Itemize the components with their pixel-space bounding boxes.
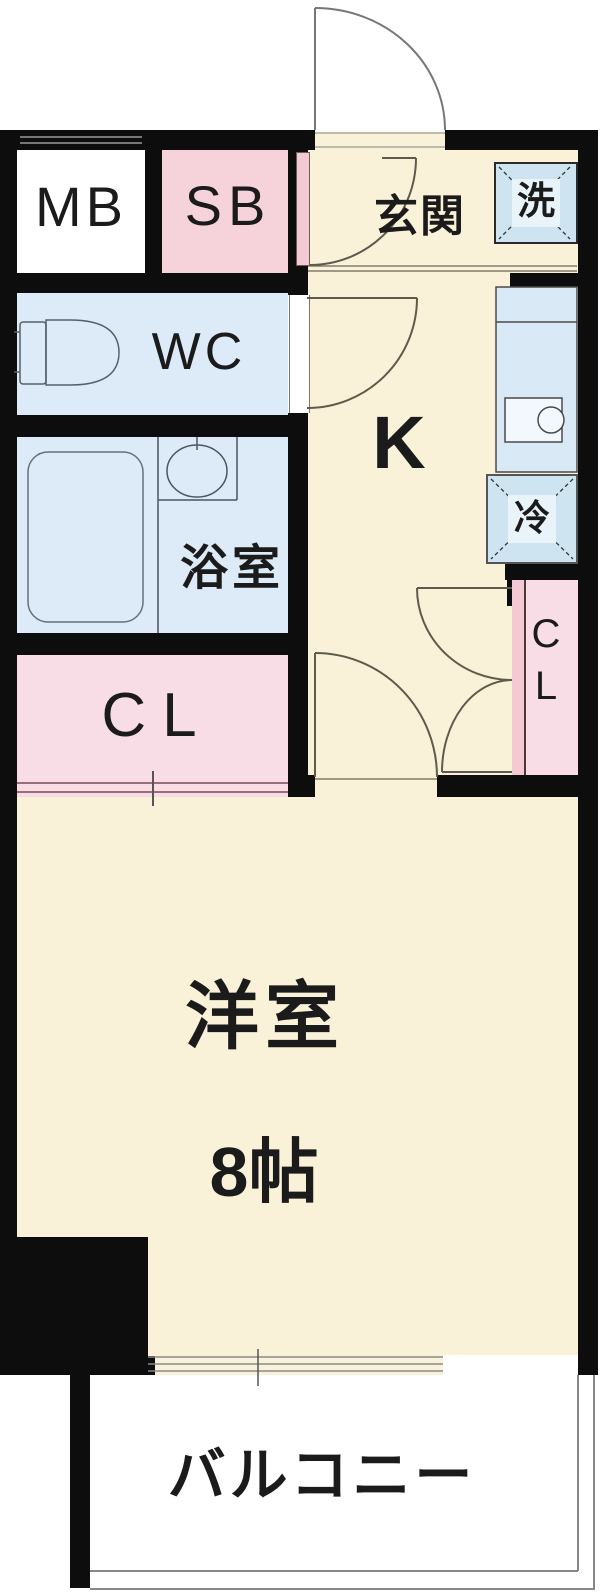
- wall-left-of-room-door: [288, 775, 315, 797]
- label-wc: WC: [152, 326, 247, 378]
- window-strip: [148, 1355, 443, 1375]
- entrance-opening: [315, 132, 445, 150]
- label-balcony: バルコニー: [168, 1447, 477, 1505]
- wall-left: [0, 150, 17, 1237]
- label-western-room: 洋室: [185, 980, 345, 1054]
- wall-block-bottom-left: [0, 1237, 148, 1375]
- wall-below-mb-sb: [0, 273, 308, 293]
- wall-center-lower: [288, 413, 308, 797]
- label-genkan: 玄関: [374, 195, 466, 239]
- label-fridge: 冷: [514, 500, 550, 536]
- wall-mb-sb-divider: [145, 150, 162, 273]
- wall-block-step: [148, 1356, 155, 1375]
- wall-right: [578, 130, 598, 1375]
- wall-below-fridge: [505, 563, 598, 580]
- wall-top-left: [0, 130, 315, 150]
- entrance-door-arc: [315, 8, 445, 147]
- label-kitchen: K: [372, 406, 425, 480]
- wall-below-bath: [0, 633, 305, 655]
- room-bathroom: [17, 437, 288, 633]
- label-western-room-size: 8帖: [210, 1137, 319, 1207]
- floor-plan: MB SB 玄関 洗 WC K 冷 浴室 CL CL 洋室 8帖 バルコニー: [0, 0, 600, 1596]
- label-sb: SB: [185, 178, 272, 234]
- wall-below-wc: [0, 415, 308, 437]
- label-closet-right: CL: [526, 612, 566, 716]
- label-bathroom: 浴室: [180, 545, 284, 593]
- label-mb: MB: [35, 179, 127, 235]
- label-closet-left: CL: [101, 685, 212, 747]
- wc-door-opening: [289, 295, 310, 413]
- label-washer: 洗: [517, 183, 555, 221]
- sb-door-panel: [296, 152, 310, 266]
- wall-top-right: [445, 130, 598, 150]
- wall-balcony-left: [70, 1375, 90, 1588]
- wall-below-genkan: [510, 273, 578, 287]
- wall-above-western-right: [437, 775, 598, 797]
